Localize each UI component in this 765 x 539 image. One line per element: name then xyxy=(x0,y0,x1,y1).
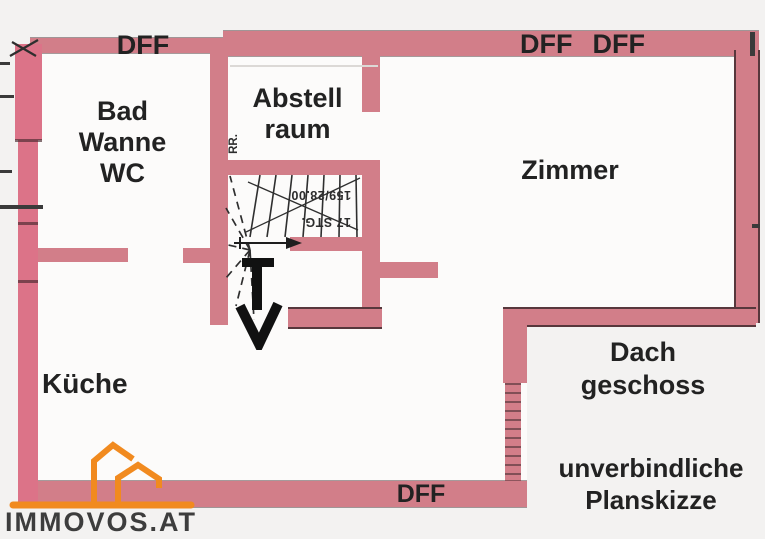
room-label-bad-line3: WC xyxy=(45,158,200,189)
room-label-abstellraum-line1: Abstell xyxy=(220,83,375,114)
wall-bad-kueche-divider xyxy=(38,248,128,262)
floor-label-dachgeschoss: Dach geschoss xyxy=(568,336,718,402)
wall-end-tick xyxy=(750,32,755,56)
dimension-tick xyxy=(0,62,10,65)
wall-corridor-stub xyxy=(380,262,438,278)
stair-direction-arrow xyxy=(234,254,284,350)
wall-joint xyxy=(15,139,42,142)
dff-label-top-right-1: DFF xyxy=(520,29,572,60)
floor-label-line2: geschoss xyxy=(568,369,718,402)
floor-label-line1: Dach xyxy=(568,336,718,369)
dimension-tick xyxy=(0,170,12,173)
immovos-logo-icon xyxy=(5,436,205,514)
disclaimer-label: unverbindliche Planskizze xyxy=(536,452,765,516)
wall-zimmer-bottom xyxy=(503,307,756,327)
disclaimer-line1: unverbindliche xyxy=(536,452,765,484)
room-label-abstellraum: Abstell raum xyxy=(220,83,375,145)
dimension-tick xyxy=(0,95,14,98)
room-label-zimmer: Zimmer xyxy=(500,155,640,186)
wall-joint xyxy=(18,222,38,225)
room-label-abstellraum-line2: raum xyxy=(220,114,375,145)
dff-label-bottom: DFF xyxy=(388,480,454,509)
room-label-bad-line2: Wanne xyxy=(45,127,200,158)
wall-zimmer-right xyxy=(734,50,760,323)
dff-labels-top-right: DFF DFF xyxy=(520,29,645,60)
corner-cross-mark xyxy=(8,36,44,60)
immovos-logo-text: IMMOVOS.AT xyxy=(5,507,197,538)
scan-artifact xyxy=(230,65,378,67)
dimension-line xyxy=(0,205,43,209)
wall-lower-right-thin xyxy=(505,383,521,483)
room-label-bad: Bad Wanne WC xyxy=(45,96,200,189)
floorplan-canvas: 159/28.00 17 STG. RR. DFF DFF DFF DFF Ba… xyxy=(0,0,765,539)
wall-top-right xyxy=(223,31,759,56)
room-label-bad-line1: Bad xyxy=(45,96,200,127)
stair-dimension-label: 159/28.00 xyxy=(278,186,364,202)
stair-steps-label: 17 STG. xyxy=(292,213,360,229)
room-label-kueche: Küche xyxy=(42,368,162,400)
wall-tick-right xyxy=(752,224,760,228)
wall-joint xyxy=(18,280,38,283)
dff-label-top-left: DFF xyxy=(108,30,178,61)
wall-lower-right-stub xyxy=(503,323,527,383)
wall-divider-stub xyxy=(183,248,210,263)
disclaimer-line2: Planskizze xyxy=(536,484,765,516)
dff-label-top-right-2: DFF xyxy=(592,29,644,60)
